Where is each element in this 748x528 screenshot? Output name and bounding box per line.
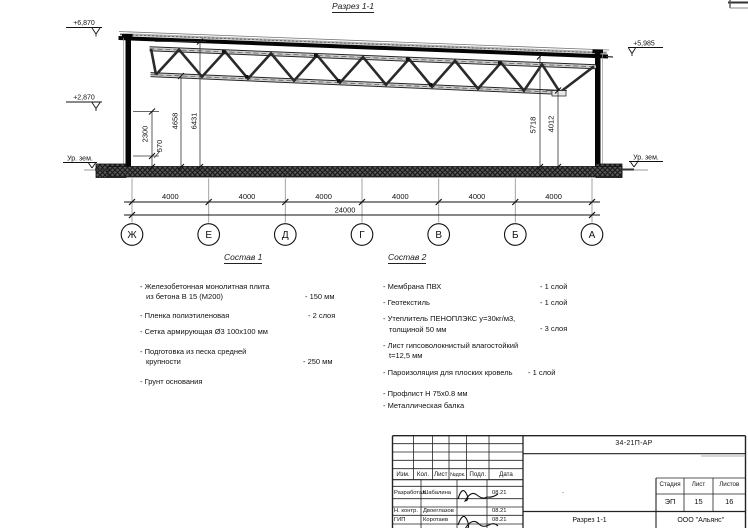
axis-bubbles: Ж Е Д Г В Б А bbox=[121, 224, 603, 246]
list-item: - Пленка полиэтиленовая bbox=[140, 311, 318, 322]
dim-5718: 5718 bbox=[529, 117, 538, 134]
col-izm: Изм. bbox=[393, 471, 414, 478]
sostav2-title: Состав 2 bbox=[388, 252, 426, 264]
section-drawing: 2300 570 4658 6431 5718 4012 bbox=[0, 0, 748, 528]
col-list: Лист bbox=[433, 471, 450, 478]
roof-assembly bbox=[119, 32, 614, 59]
sheet-value: 15 bbox=[684, 497, 713, 506]
stray-mark: . bbox=[562, 488, 564, 495]
ground-level-left: Ур. зем. bbox=[67, 156, 93, 163]
svg-text:Е: Е bbox=[205, 230, 212, 241]
axis-grid-lines bbox=[132, 179, 592, 223]
row-date: 08.21 bbox=[492, 508, 507, 514]
ground-level-right: Ур. зем. bbox=[633, 155, 659, 162]
list-item: - Железобетонная монолитная плитаиз бето… bbox=[140, 282, 318, 303]
svg-text:4000: 4000 bbox=[545, 192, 562, 201]
frame-corner-mark bbox=[728, 0, 748, 8]
row-date: 08.21 bbox=[492, 517, 507, 523]
list-item-value: - 3 слоя bbox=[540, 324, 567, 333]
dim-570: 570 bbox=[155, 140, 164, 153]
row-role: Н. контр. bbox=[394, 508, 418, 514]
list-item-value: - 1 слой bbox=[540, 298, 567, 307]
row-role: Разработал bbox=[394, 490, 426, 496]
floor-slab bbox=[84, 164, 648, 178]
list-item-value: - 1 слой bbox=[540, 282, 567, 291]
stage-label: Стадия bbox=[656, 481, 684, 488]
svg-text:4000: 4000 bbox=[315, 192, 332, 201]
sheets-value: 16 bbox=[713, 497, 746, 506]
svg-text:А: А bbox=[589, 230, 596, 241]
row-name: Коротаев bbox=[423, 517, 448, 523]
list-item: - Лист гипсоволокнистый влагостойкийt=12… bbox=[383, 341, 561, 362]
elevation-top-right: +5,985 bbox=[633, 41, 655, 48]
dim-2300: 2300 bbox=[141, 126, 150, 143]
dim-6431: 6431 bbox=[190, 113, 199, 130]
total-dimension-label: 24000 bbox=[335, 206, 356, 215]
col-kol: Кол. bbox=[414, 471, 433, 478]
sheets-label: Листов bbox=[713, 481, 746, 488]
svg-text:4000: 4000 bbox=[239, 192, 256, 201]
elevation-mark-icon bbox=[628, 48, 663, 57]
ground-level-mark-icon bbox=[629, 162, 663, 168]
company-name: ООО "Альянс" bbox=[656, 517, 746, 524]
right-dimensions bbox=[537, 54, 567, 171]
list-item: - Утеплитель ПЕНОПЛЭКС у=30кг/м3,толщино… bbox=[383, 314, 561, 335]
svg-text:Г: Г bbox=[359, 230, 365, 241]
stage-value: ЭП bbox=[656, 497, 684, 506]
list-item: - Профлист Н 75х0.8 мм bbox=[383, 389, 561, 400]
sostav1-title: Состав 1 bbox=[224, 252, 262, 264]
col-podl: Подл. bbox=[467, 471, 490, 478]
list-item-value: - 2 слоя bbox=[308, 311, 335, 320]
col-data: Дата bbox=[489, 471, 523, 478]
svg-text:В: В bbox=[435, 230, 442, 241]
list-item: - Геотекстиль bbox=[383, 298, 561, 309]
svg-text:4000: 4000 bbox=[469, 192, 486, 201]
svg-text:Ж: Ж bbox=[127, 230, 137, 241]
svg-text:4000: 4000 bbox=[392, 192, 409, 201]
row-role: ГИП bbox=[394, 517, 405, 523]
svg-text:4000: 4000 bbox=[162, 192, 179, 201]
elevation-mark-icon bbox=[66, 102, 102, 111]
row-date: 08.21 bbox=[492, 490, 507, 496]
col-ndok: №док. bbox=[449, 472, 467, 478]
list-item-value: - 150 мм bbox=[305, 292, 335, 301]
dim-4658: 4658 bbox=[171, 113, 180, 130]
row-name: Двоеглазов bbox=[423, 508, 454, 514]
drawing-name: Разрез 1-1 bbox=[523, 517, 656, 524]
elevation-mark-icon bbox=[66, 28, 102, 37]
elevation-mid-left: +2,870 bbox=[73, 95, 95, 102]
dim-4012: 4012 bbox=[547, 116, 556, 133]
list-item: - Подготовка из песка среднейкрупности bbox=[140, 347, 318, 368]
list-item-value: - 1 слой bbox=[528, 368, 555, 377]
elevation-top-left: +6,870 bbox=[73, 20, 95, 27]
row-name: Шабалина bbox=[423, 490, 451, 496]
drawing-sheet: Разрез 1-1 bbox=[0, 0, 748, 528]
left-wall bbox=[122, 34, 133, 168]
list-item: - Грунт основания bbox=[140, 377, 318, 388]
sheet-label: Лист bbox=[684, 481, 713, 488]
list-item: - Металлическая балка bbox=[383, 401, 561, 412]
doc-number: 34-21П-АР bbox=[523, 440, 745, 447]
list-item: - Мембрана ПВХ bbox=[383, 282, 561, 293]
list-item: - Сетка армирующая Ø3 100х100 мм bbox=[140, 327, 318, 338]
svg-text:Б: Б bbox=[512, 230, 519, 241]
ground-level-mark-icon bbox=[63, 163, 97, 169]
svg-text:Д: Д bbox=[282, 230, 289, 241]
list-item-value: - 250 мм bbox=[303, 357, 333, 366]
